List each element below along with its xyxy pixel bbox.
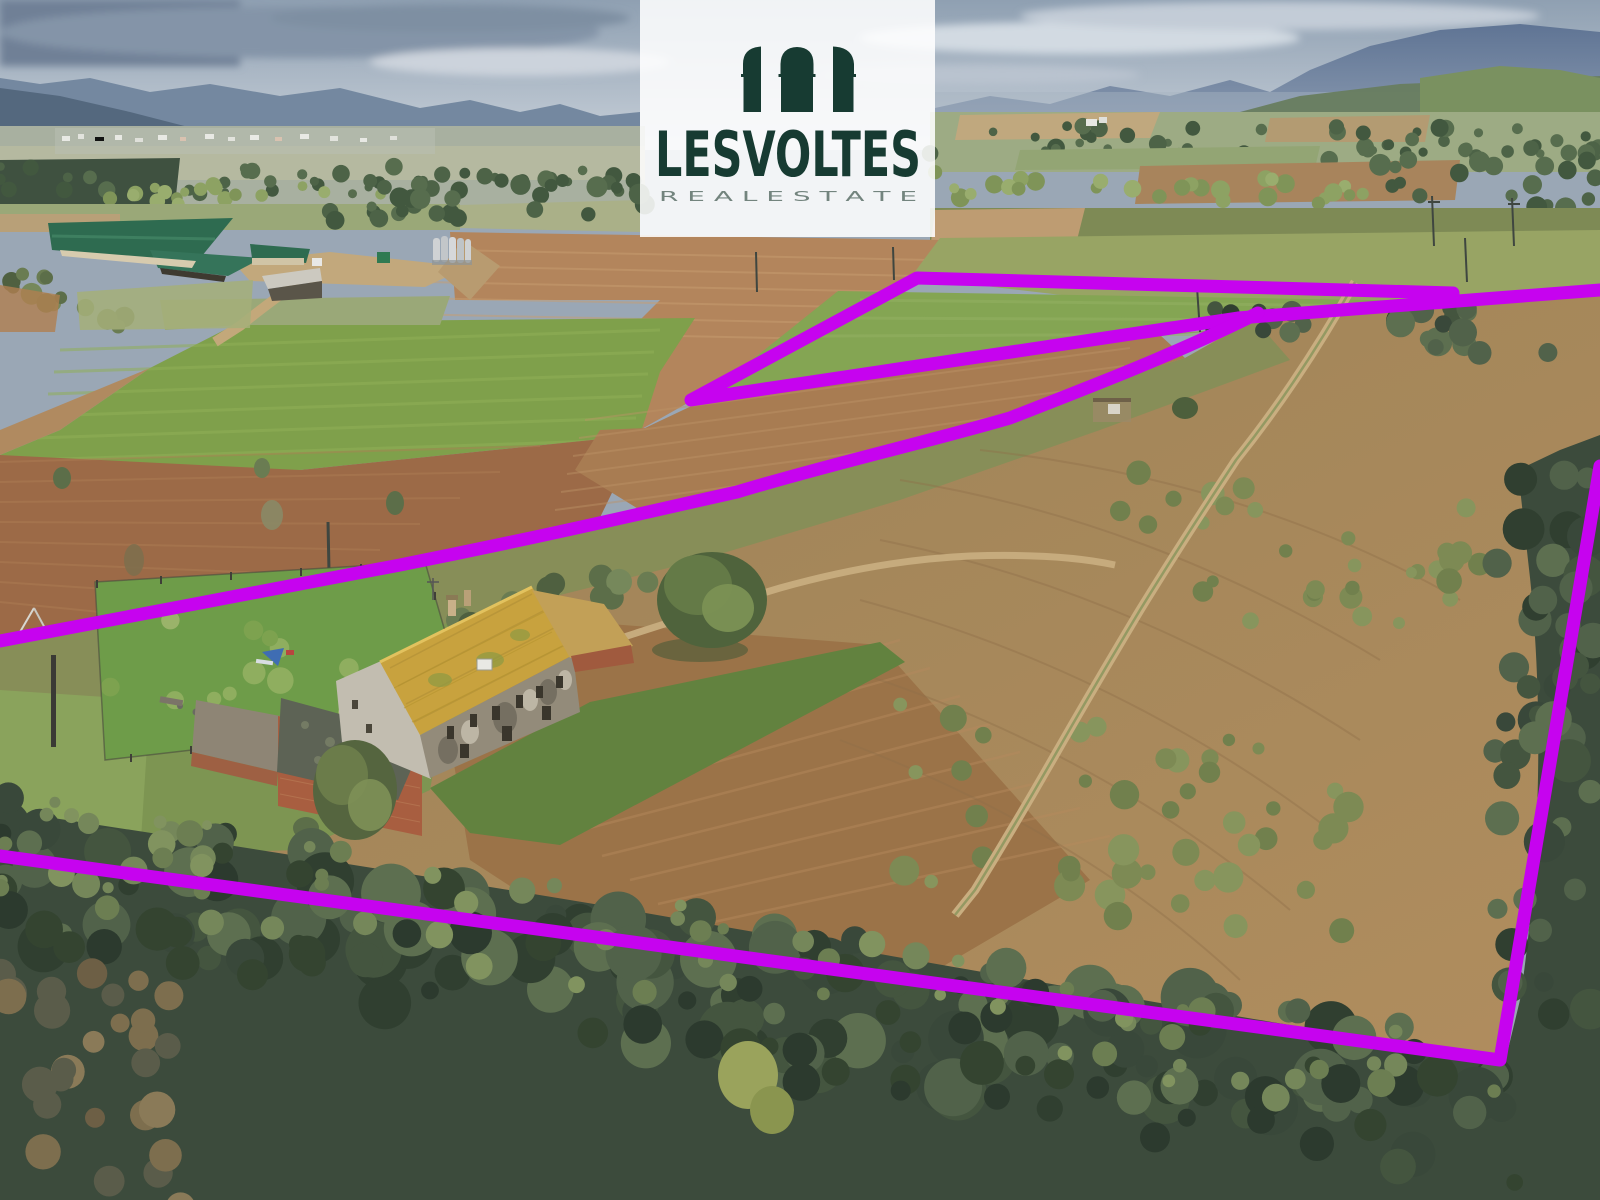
logo-watermark: LESVOLTES R E A L E S T A T E xyxy=(640,0,935,237)
distant-town xyxy=(55,128,435,154)
white-van xyxy=(312,258,322,266)
tall-pole xyxy=(51,655,56,747)
logo-subtitle: R E A L E S T A T E xyxy=(659,190,917,205)
aerial-property-photo: LESVOLTES R E A L E S T A T E xyxy=(0,0,1600,1200)
chimney-2 xyxy=(464,590,471,606)
chimney xyxy=(448,598,456,616)
white-box-on-roof xyxy=(477,659,492,670)
front-tree xyxy=(313,740,397,840)
green-container xyxy=(377,252,390,263)
trees-right-band xyxy=(1369,143,1600,219)
logo-title: LESVOLTES xyxy=(655,118,921,191)
feed-silos xyxy=(432,236,472,265)
valley-left xyxy=(0,126,646,232)
logo-arches-icon xyxy=(741,47,856,113)
distant-farm-dot xyxy=(1086,119,1097,126)
